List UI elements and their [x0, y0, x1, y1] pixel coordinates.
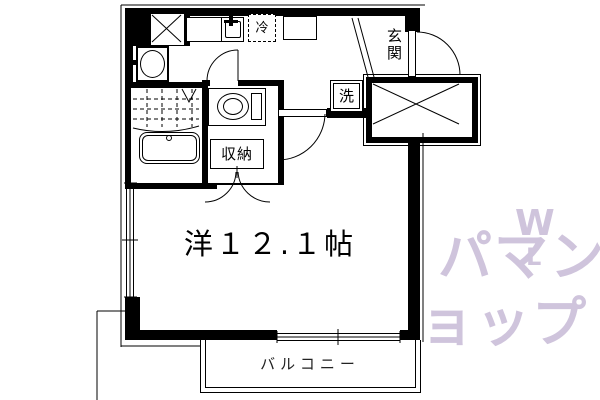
wall-topright-corner: [405, 8, 420, 32]
shoe-cabinet: [283, 16, 317, 40]
washing-machine-label: 洗: [330, 80, 363, 112]
entrance-label: 玄関: [381, 28, 401, 76]
faucet-arm-icon: [224, 20, 238, 23]
watermark-l-mark: L: [526, 243, 541, 271]
watermark-w-mark: W: [515, 203, 555, 244]
pipe-shaft-icon: [150, 13, 185, 46]
toilet-bowl-inner: [223, 98, 243, 115]
kitchen-counter-divider: [221, 18, 222, 41]
room-door-leaf: [278, 109, 327, 117]
watermark-line2: ョップ: [420, 278, 588, 357]
storage-label: 収納: [210, 139, 264, 169]
balcony-label: バルコニー: [240, 354, 380, 374]
main-room-label: 洋１２.１帖: [155, 226, 385, 262]
entrance-door-leaf: [408, 30, 416, 77]
refrigerator-label: 冷: [248, 14, 276, 42]
wall-right: [408, 118, 420, 340]
floorplan-canvas: パマン ョップ W L 冷 収納 洗: [0, 0, 600, 400]
washbasin-bowl-icon: [140, 50, 165, 78]
faucet-icon: [229, 10, 233, 26]
wall-bottom-left: [128, 330, 277, 340]
toilet-tank-icon: [251, 93, 262, 120]
bathtub-drain-icon: [166, 135, 172, 141]
toilet-doorway-gap: [210, 80, 238, 86]
kitchen-sink-icon: [225, 21, 241, 38]
elevator-shaft-icon: [366, 77, 478, 143]
